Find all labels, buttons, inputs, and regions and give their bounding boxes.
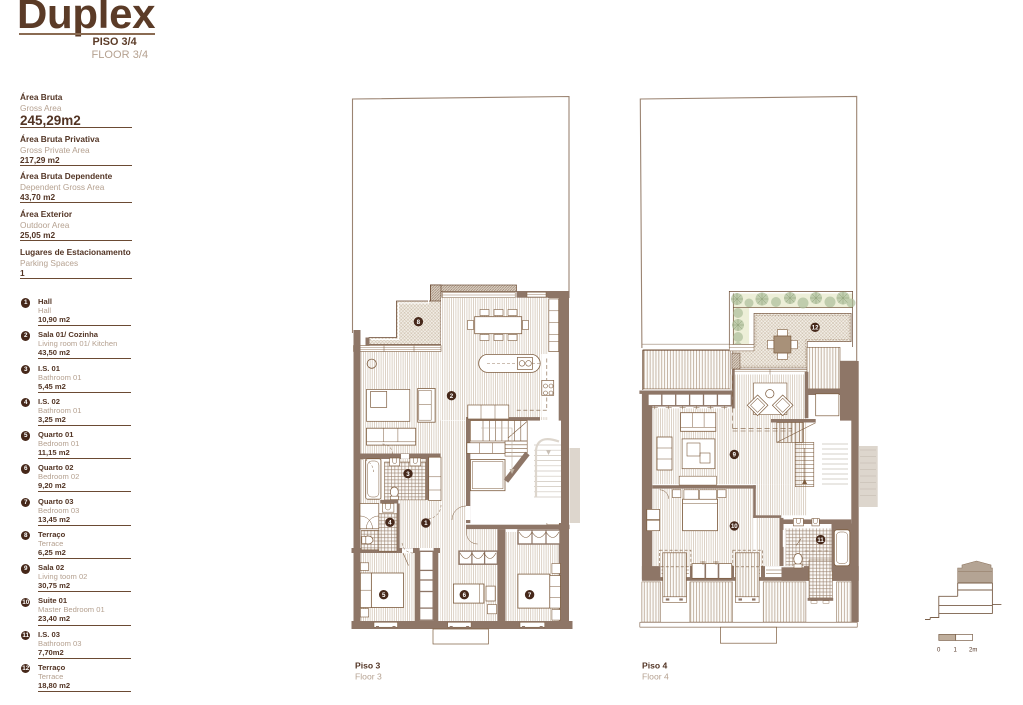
svg-text:5: 5 — [382, 592, 386, 599]
svg-text:10: 10 — [731, 524, 738, 530]
svg-text:Piso 3: Piso 3 — [355, 661, 381, 671]
svg-text:6: 6 — [463, 592, 467, 599]
svg-text:11: 11 — [817, 538, 824, 544]
svg-text:8: 8 — [417, 319, 421, 326]
svg-text:2m: 2m — [969, 648, 977, 654]
svg-text:Floor 4: Floor 4 — [642, 672, 669, 682]
svg-text:3: 3 — [406, 471, 410, 478]
svg-text:Piso 4: Piso 4 — [642, 661, 668, 671]
svg-text:4: 4 — [388, 520, 392, 527]
svg-text:1: 1 — [954, 648, 958, 654]
svg-text:2: 2 — [450, 393, 454, 400]
svg-text:12: 12 — [812, 326, 819, 332]
svg-text:1: 1 — [424, 520, 428, 527]
svg-text:Floor 3: Floor 3 — [355, 672, 382, 682]
svg-text:7: 7 — [528, 592, 532, 599]
svg-text:0: 0 — [937, 648, 941, 654]
